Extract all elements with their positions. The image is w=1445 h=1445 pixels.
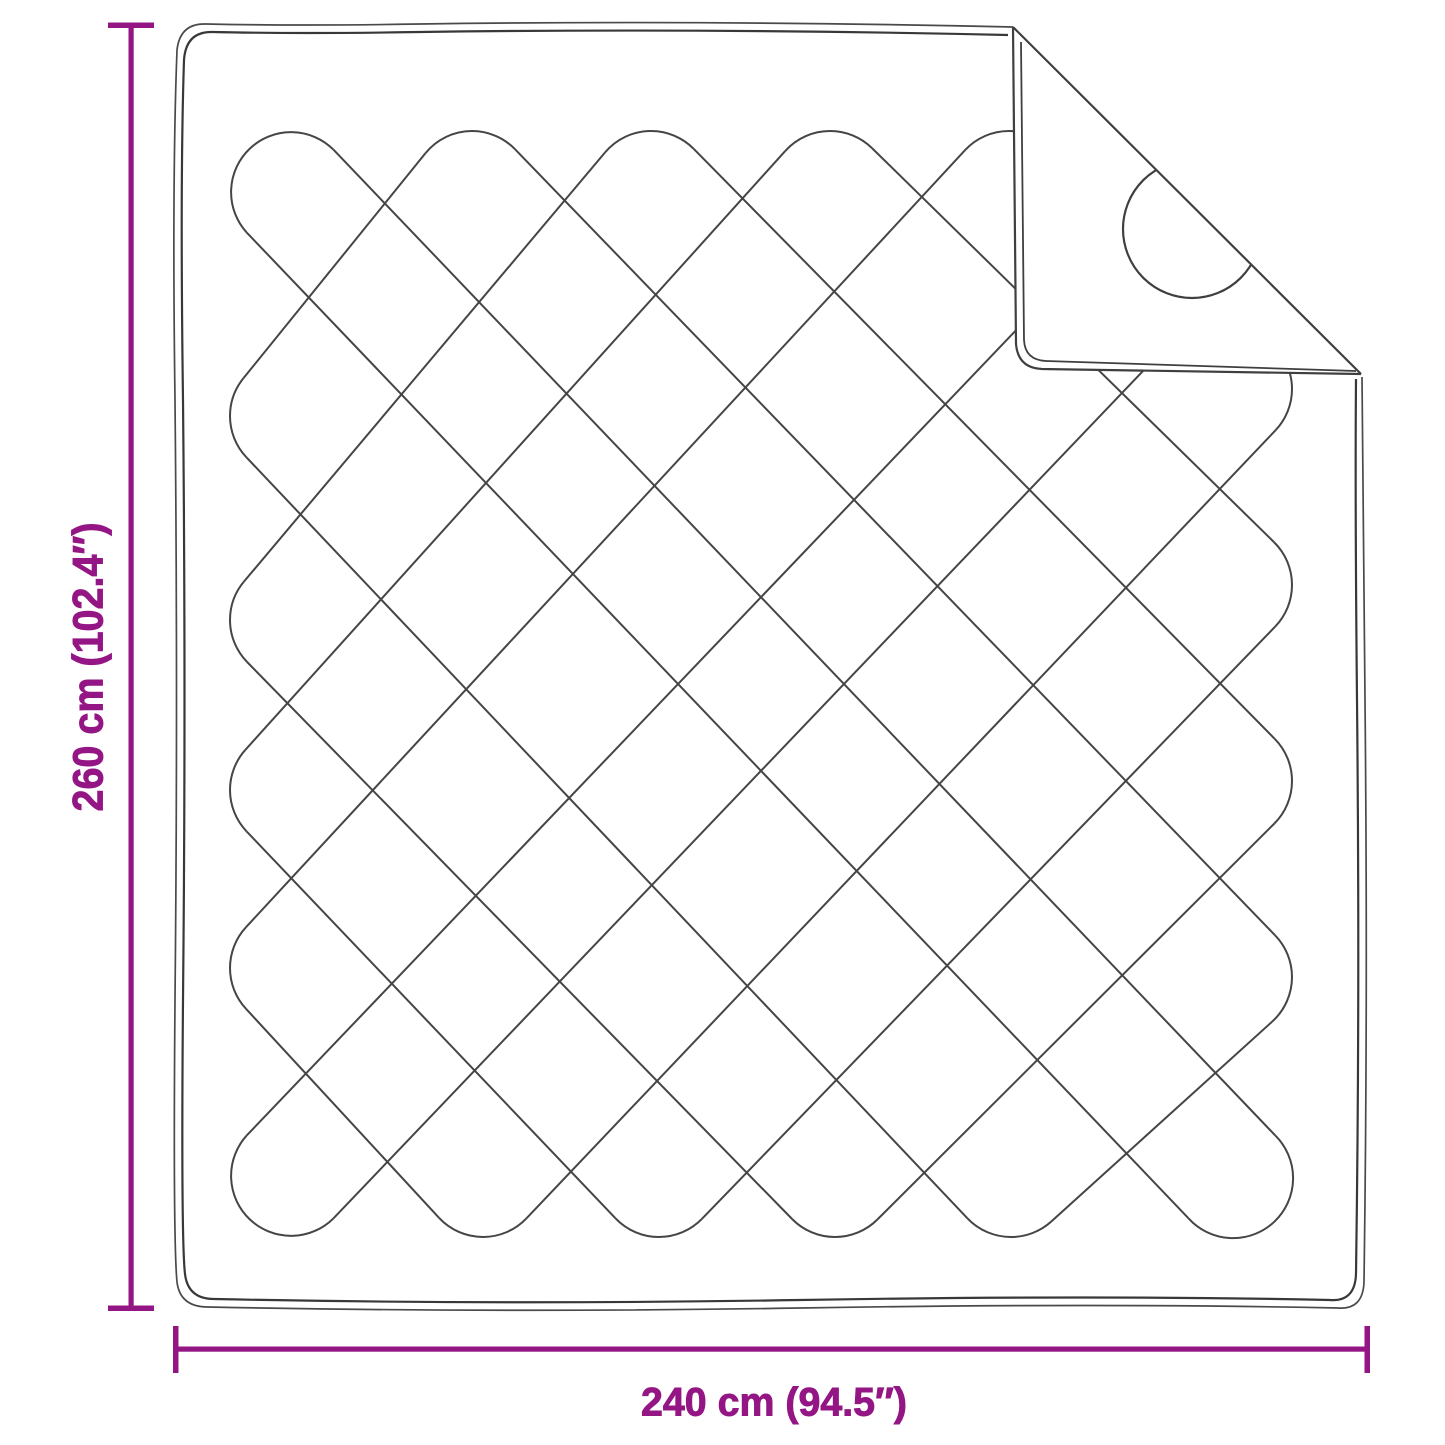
svg-text:260 cm (102.4″): 260 cm (102.4″)	[65, 523, 113, 812]
svg-text:240 cm (94.5″): 240 cm (94.5″)	[641, 1381, 907, 1425]
